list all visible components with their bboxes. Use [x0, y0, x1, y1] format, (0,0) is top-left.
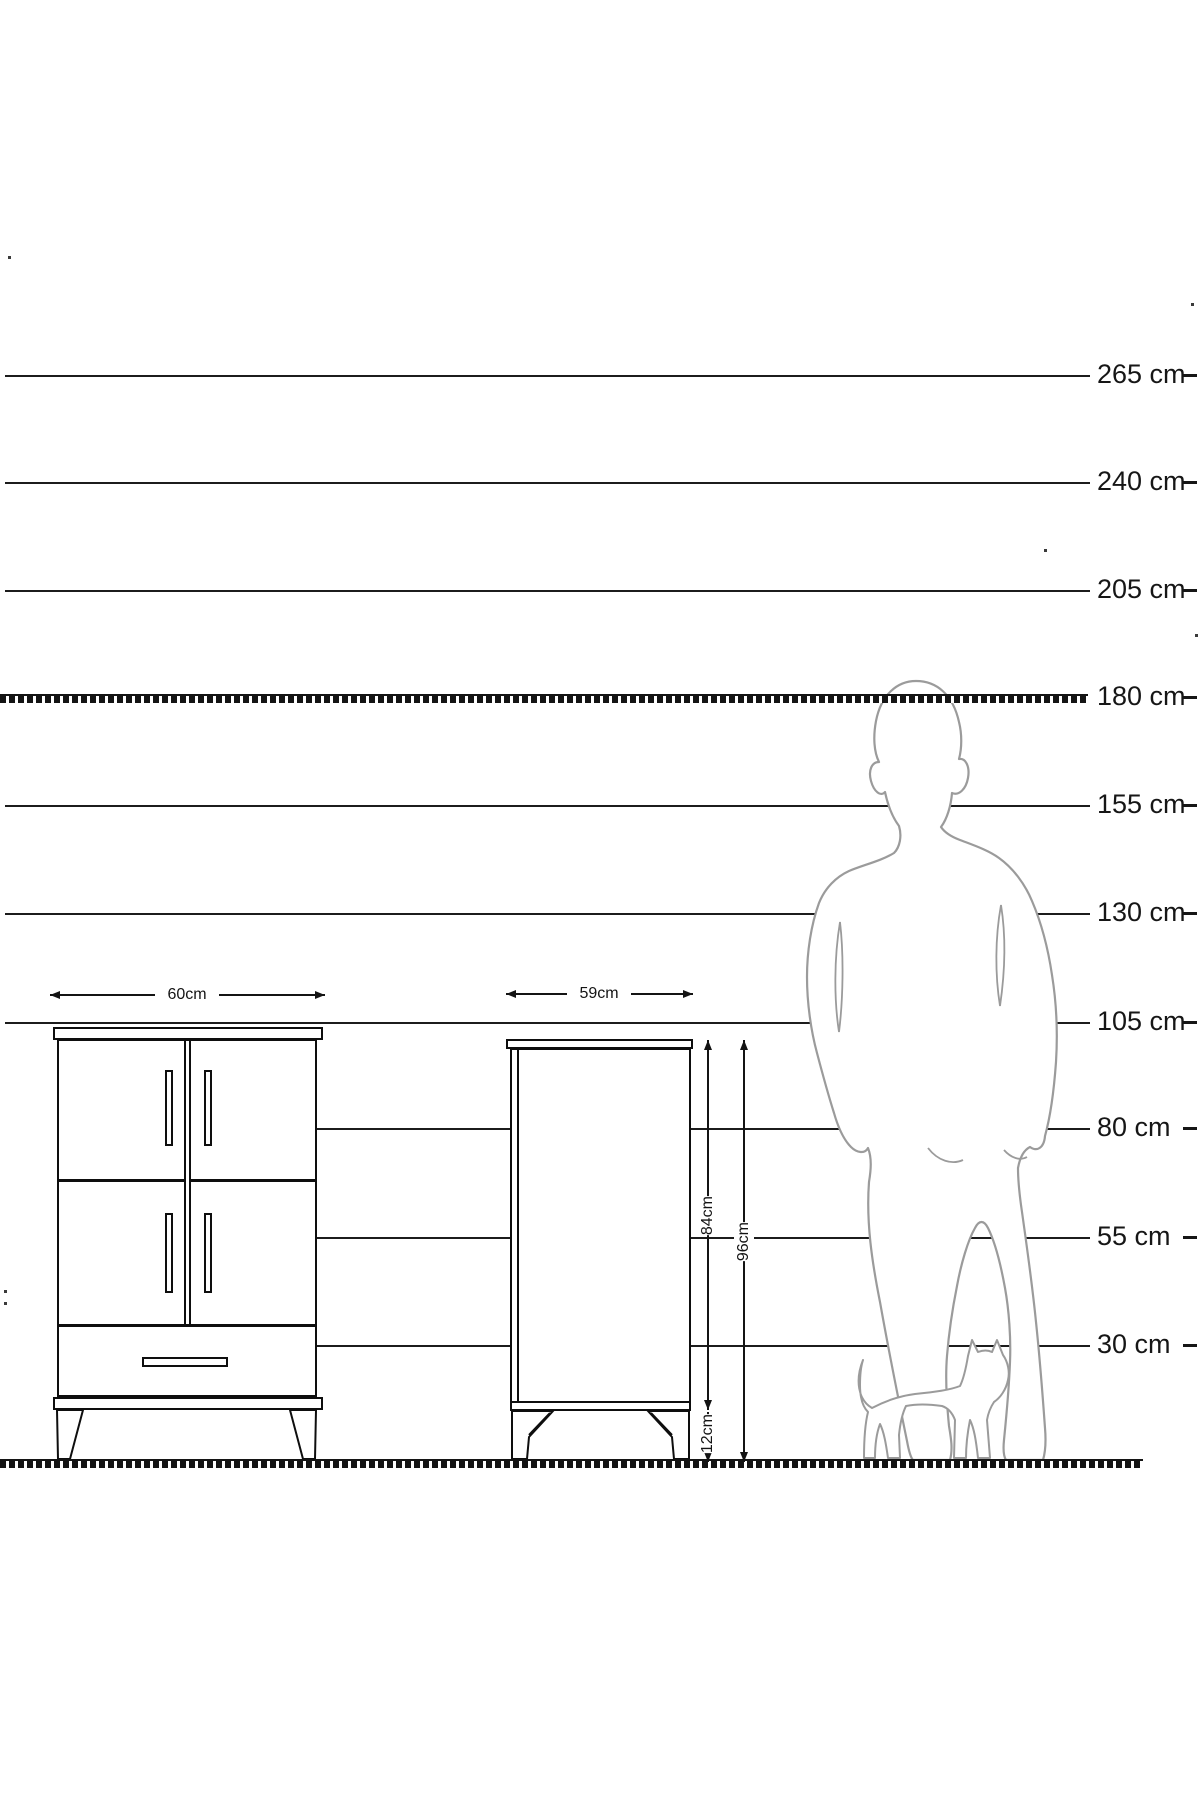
arrowhead	[50, 991, 60, 999]
height-line-180-hatched	[0, 694, 1088, 703]
height-label-80: 80 cm	[1097, 1110, 1189, 1144]
side-leg-front	[512, 1411, 553, 1459]
leg-height-label: 12cm	[698, 1414, 718, 1453]
height-label-tick	[1183, 589, 1197, 592]
artifact-dot	[4, 1290, 7, 1293]
height-label-tick	[1183, 696, 1197, 699]
height-label-105: 105 cm	[1097, 1004, 1189, 1038]
height-label-130: 130 cm	[1097, 895, 1189, 929]
height-label-tick	[1183, 1021, 1197, 1024]
arrowhead	[683, 990, 693, 998]
height-label-tick	[1183, 481, 1197, 484]
height-label-tick	[1183, 804, 1197, 807]
arrowhead	[704, 1040, 712, 1050]
height-label-tick	[1183, 1127, 1197, 1130]
arrowhead	[704, 1400, 712, 1410]
artifact-dot	[1191, 303, 1194, 306]
arrowhead	[740, 1452, 748, 1462]
height-label-55: 55 cm	[1097, 1219, 1189, 1253]
arrowhead	[315, 991, 325, 999]
arrowhead	[506, 990, 516, 998]
artifact-dot	[1195, 634, 1198, 637]
height-label-180: 180 cm	[1097, 679, 1189, 713]
height-label-155: 155 cm	[1097, 787, 1189, 821]
ground-line	[0, 1459, 1143, 1468]
artifact-dot	[8, 256, 11, 259]
front-leg-right	[290, 1410, 316, 1459]
height-label-240: 240 cm	[1097, 464, 1189, 498]
height-label-30: 30 cm	[1097, 1327, 1189, 1361]
height-label-tick	[1183, 374, 1197, 377]
front-width-label: 60cm	[155, 986, 219, 1004]
side-width-label: 59cm	[567, 985, 631, 1003]
total-height-label: 96cm	[734, 1222, 754, 1261]
arrowhead	[740, 1040, 748, 1050]
dimension-diagram: 265 cm240 cm205 cm180 cm155 cm130 cm105 …	[0, 0, 1200, 1800]
height-label-tick	[1183, 912, 1197, 915]
height-label-tick	[1183, 1344, 1197, 1347]
artifact-dot	[1044, 549, 1047, 552]
height-label-tick	[1183, 1236, 1197, 1239]
artifact-dot	[4, 1302, 7, 1305]
front-leg-left	[57, 1410, 83, 1459]
figures-layer	[0, 0, 1200, 1800]
side-leg-rear	[648, 1411, 689, 1459]
carcass-height-label: 84cm	[698, 1196, 718, 1235]
height-label-205: 205 cm	[1097, 572, 1189, 606]
person-silhouette	[807, 681, 1057, 1460]
arrowhead	[704, 1452, 712, 1462]
height-label-265: 265 cm	[1097, 357, 1189, 391]
